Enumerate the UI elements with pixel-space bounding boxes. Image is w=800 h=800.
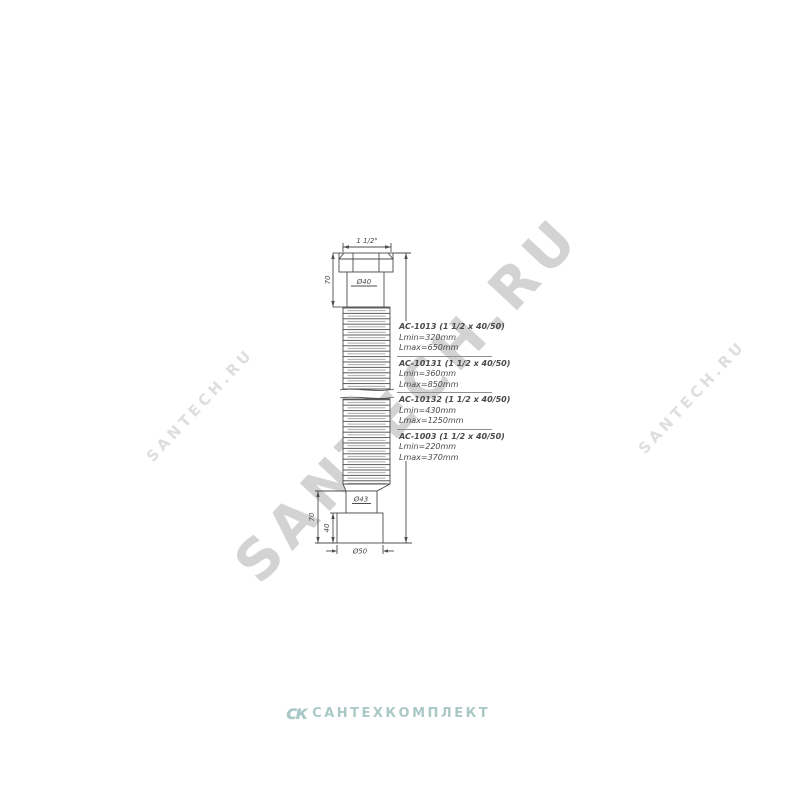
cuff-height-label: 40: [323, 523, 331, 532]
corrugated-tube-upper: [343, 307, 390, 389]
transition: [343, 484, 390, 491]
variant-spec: AC-1003 (1 1/2 x 40/50) Lmin=220mm Lmax=…: [397, 429, 492, 466]
variant-specs: AC-1013 (1 1/2 x 40/50) Lmin=320mm Lmax=…: [397, 320, 492, 465]
cuff-diameter-label: Ø50: [352, 548, 368, 556]
variant-spec: AC-1013 (1 1/2 x 40/50) Lmin=320mm Lmax=…: [397, 320, 492, 356]
cuff-height-dimension: [330, 513, 337, 543]
outlet-diameter-label: Ø43: [353, 496, 368, 504]
variant-spec: AC-10132 (1 1/2 x 40/50) Lmin=430mm Lmax…: [397, 392, 492, 429]
variant-code: AC-1013 (1 1/2 x 40/50): [399, 322, 492, 333]
variant-lmin: Lmin=430mm: [399, 406, 492, 417]
variant-code: AC-10132 (1 1/2 x 40/50): [399, 395, 492, 406]
cuff: [337, 513, 383, 543]
thread-size-label: 1 1/2": [356, 237, 377, 245]
brand-logo-text: САНТЕХКОМПЛЕКТ: [312, 706, 490, 721]
variant-spec: AC-10131 (1 1/2 x 40/50) Lmin=360mm Lmax…: [397, 356, 492, 393]
pipe-break: [340, 389, 394, 398]
variant-lmax: Lmax=650mm: [399, 343, 492, 354]
brand-logo: ск САНТЕХКОМПЛЕКТ: [286, 702, 490, 724]
page: { "watermarks": { "center": "SANTECH.RU"…: [0, 0, 800, 800]
top-height-label: 70: [324, 275, 332, 284]
outlet-height-label: 70: [308, 512, 316, 521]
corrugated-tube-lower: [343, 399, 390, 484]
variant-lmax: Lmax=370mm: [399, 453, 492, 464]
variant-lmin: Lmin=220mm: [399, 442, 492, 453]
variant-lmin: Lmin=320mm: [399, 333, 492, 344]
neck-diameter-label: Ø40: [356, 278, 372, 286]
variant-code: AC-1003 (1 1/2 x 40/50): [399, 432, 492, 443]
variant-code: AC-10131 (1 1/2 x 40/50): [399, 359, 492, 370]
variant-lmin: Lmin=360mm: [399, 369, 492, 380]
santehkomplekt-logo-icon: ск: [286, 703, 306, 723]
variant-lmax: Lmax=850mm: [399, 380, 492, 391]
nut: [339, 253, 393, 272]
variant-lmax: Lmax=1250mm: [399, 416, 492, 427]
